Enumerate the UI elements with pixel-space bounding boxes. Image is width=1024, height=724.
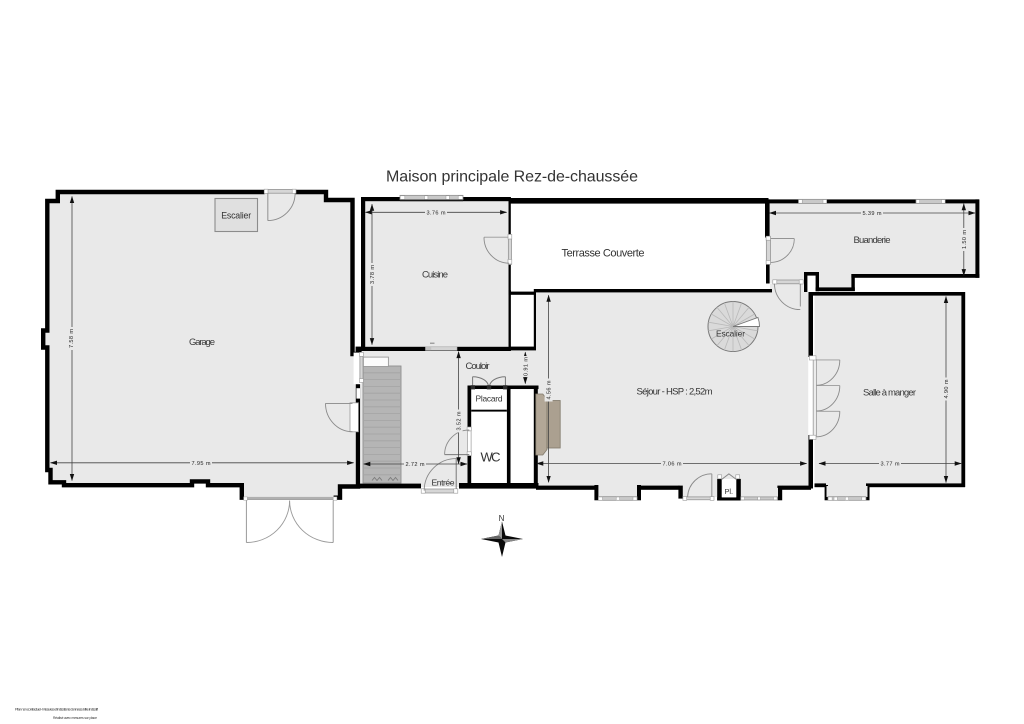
svg-text:Séjour - HSP : 2,52m: Séjour - HSP : 2,52m [637,387,713,398]
svg-text:Escalier: Escalier [716,329,745,339]
svg-text:1.50 m: 1.50 m [962,230,968,249]
svg-text:N: N [499,514,505,523]
svg-text:4.90 m: 4.90 m [944,379,950,398]
svg-text:7.95 m: 7.95 m [192,461,211,467]
svg-text:Terrasse Couverte: Terrasse Couverte [562,248,645,260]
svg-text:Buanderie: Buanderie [854,235,891,246]
svg-text:3.77 m: 3.77 m [881,462,900,468]
svg-text:Réalisé avec mesures sur place: Réalisé avec mesures sur place [53,716,97,720]
svg-text:Cuisine: Cuisine [422,270,448,281]
svg-text:7.06 m: 7.06 m [663,462,682,468]
svg-text:WC: WC [481,450,501,465]
svg-text:Entrée: Entrée [432,478,455,488]
svg-text:Escalier: Escalier [221,211,251,221]
svg-text:Salle à manger: Salle à manger [863,388,916,399]
svg-text:4.56 m: 4.56 m [547,380,553,399]
svg-text:Placard: Placard [476,394,503,404]
svg-text:Maison principale Rez-de-chaus: Maison principale Rez-de-chaussée [386,169,638,186]
svg-text:Couloir: Couloir [466,361,490,372]
svg-text:3.76 m: 3.76 m [427,211,446,217]
svg-text:0.91 m: 0.91 m [523,357,529,376]
svg-text:Pl.: Pl. [724,487,733,496]
svg-text:3.78 m: 3.78 m [370,265,376,284]
svg-text:3.52 m: 3.52 m [457,411,463,430]
svg-text:Garage: Garage [189,337,215,348]
svg-text:2.72 m: 2.72 m [406,462,425,468]
svg-text:7.58 m: 7.58 m [69,329,75,348]
svg-text:Plan non contractuel - Mesures: Plan non contractuel - Mesures et indica… [15,707,99,712]
svg-text:5.39 m: 5.39 m [863,211,882,217]
